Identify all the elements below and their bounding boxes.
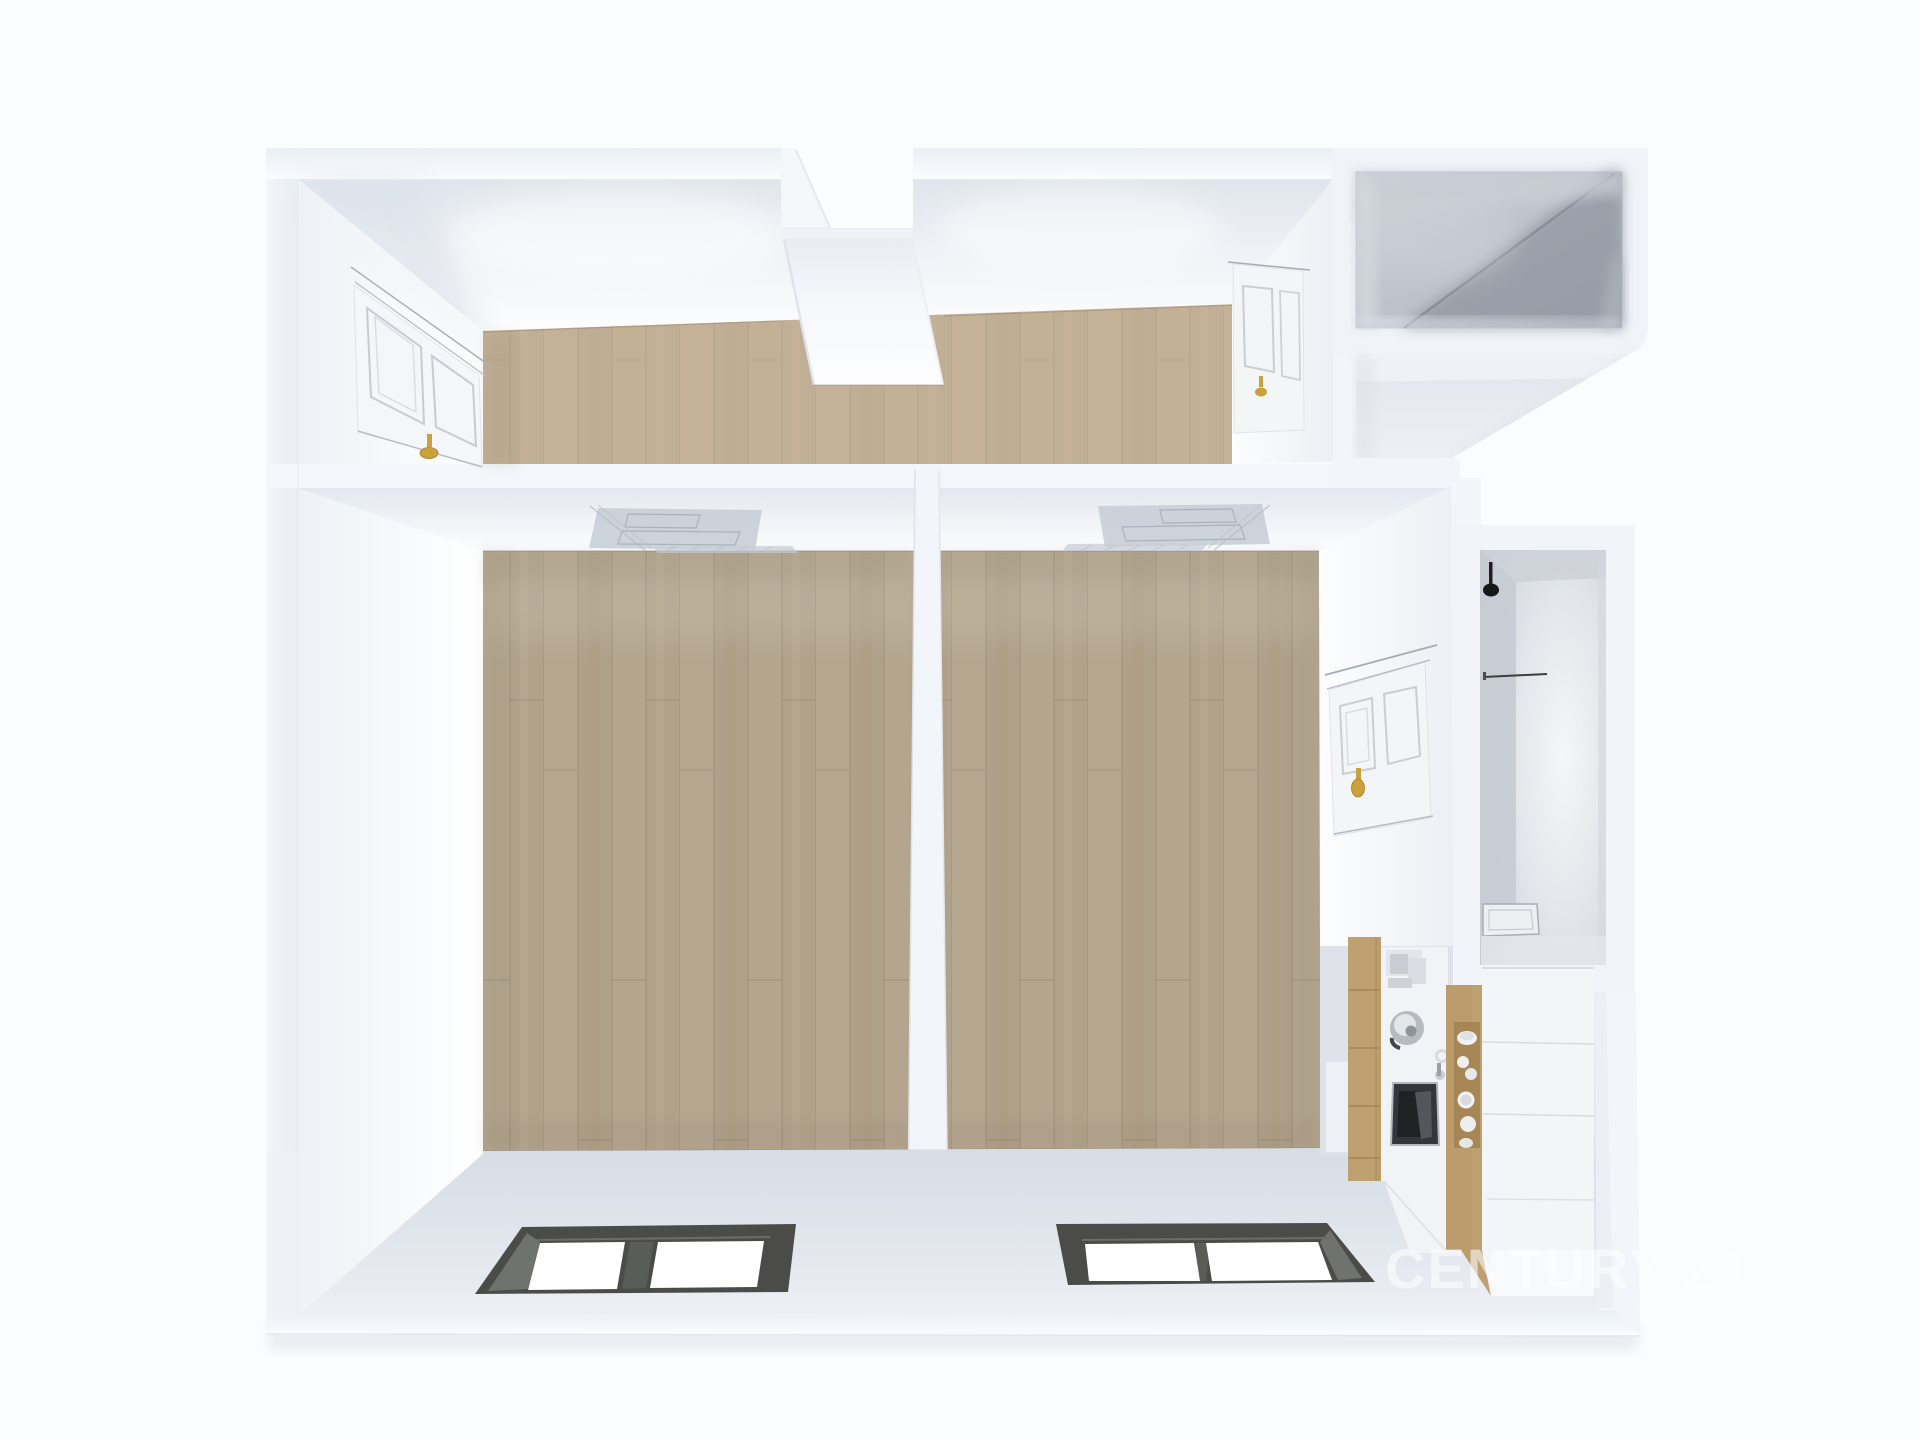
- svg-text:CENTURY 21: CENTURY 21: [1385, 1237, 1750, 1300]
